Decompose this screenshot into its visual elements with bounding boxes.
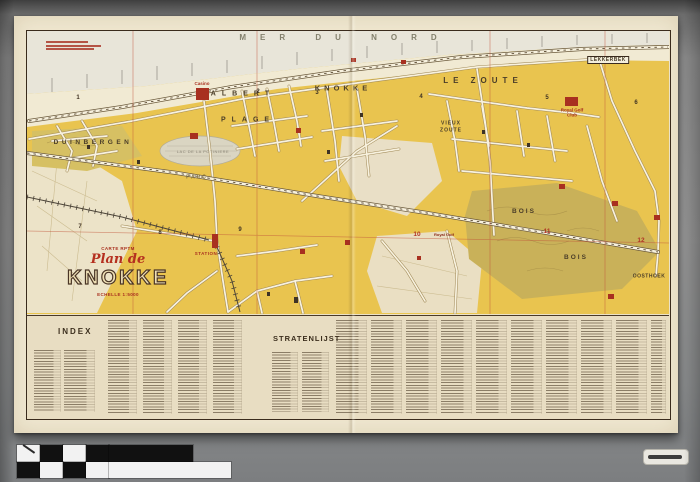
title-city: KNOKKE bbox=[64, 267, 172, 290]
lake-label: LAC DE LA POTINIERE bbox=[177, 150, 229, 154]
title-scale: ECHELLE 1:5000 bbox=[64, 292, 172, 297]
index-column bbox=[178, 320, 207, 414]
region-le-zoute: LE ZOUTE bbox=[443, 77, 523, 85]
index-column bbox=[143, 320, 172, 414]
title-series: CARTE RPTM bbox=[64, 246, 172, 251]
inventory-sticker bbox=[643, 449, 689, 465]
region-vieux-zoute-line2: ZOUTE bbox=[440, 129, 462, 134]
index-column bbox=[371, 320, 402, 414]
golf-clubhouse-marker bbox=[565, 97, 578, 106]
section-5: 5 bbox=[545, 95, 548, 101]
stratenlijst-heading: STRATENLIJST bbox=[273, 335, 340, 343]
station-label: STATION bbox=[195, 252, 218, 257]
region-oosthoek: OOSTHOEK bbox=[633, 275, 666, 280]
index-column bbox=[336, 320, 367, 414]
casino-marker bbox=[196, 88, 209, 100]
index-column bbox=[651, 320, 666, 414]
index-column bbox=[272, 352, 298, 412]
section-11: 11 bbox=[544, 229, 551, 236]
map-legend-lines bbox=[46, 41, 101, 52]
golf-club-label: Royal Golf Club bbox=[558, 109, 586, 118]
index-column bbox=[34, 350, 61, 412]
region-lekkerbek: LEKKERBEK bbox=[587, 56, 629, 64]
section-2: 2 bbox=[256, 89, 259, 95]
section-8: 8 bbox=[158, 230, 161, 236]
region-vieux-zoute-line1: VIEUX bbox=[441, 122, 461, 127]
section-9: 9 bbox=[238, 227, 241, 233]
section-1: 1 bbox=[76, 95, 79, 101]
street-index-panel: INDEX STRATENLIJST bbox=[27, 315, 669, 419]
index-column bbox=[476, 320, 507, 414]
sea-label: MER DU NORD bbox=[239, 34, 450, 42]
region-knokke: KNOKKE bbox=[315, 84, 372, 92]
section-6: 6 bbox=[634, 100, 637, 106]
golf-area-label: Royal Golf bbox=[434, 233, 454, 237]
index-column bbox=[441, 320, 472, 414]
index-column bbox=[546, 320, 577, 414]
section-4: 4 bbox=[419, 94, 422, 100]
region-bois-1: BOIS bbox=[512, 209, 536, 216]
index-column bbox=[302, 352, 329, 412]
index-column bbox=[581, 320, 612, 414]
region-parc: PARC bbox=[186, 176, 208, 181]
section-7: 7 bbox=[78, 224, 81, 230]
title-plan-de: Plan de bbox=[64, 252, 172, 267]
section-10: 10 bbox=[413, 232, 420, 239]
region-duinbergen: DUINBERGEN bbox=[54, 140, 133, 147]
region-bois-2: BOIS bbox=[564, 255, 588, 262]
casino-label: Casino bbox=[194, 82, 209, 87]
station-marker bbox=[212, 234, 218, 248]
region-plage: PLAGE bbox=[221, 117, 275, 124]
index-column bbox=[406, 320, 437, 414]
calibration-scale-bar bbox=[17, 445, 232, 478]
section-12: 12 bbox=[637, 238, 644, 245]
photograph-of-map: MER DU NORD DUINBERGEN ALBERT PLAGE KNOK… bbox=[0, 0, 700, 482]
section-3: 3 bbox=[315, 90, 318, 96]
index-column bbox=[108, 320, 137, 414]
index-column bbox=[64, 350, 95, 412]
region-albert: ALBERT bbox=[211, 91, 275, 98]
index-column bbox=[511, 320, 542, 414]
index-column bbox=[213, 320, 242, 414]
map-title-block: CARTE RPTM Plan de KNOKKE ECHELLE 1:5000 bbox=[64, 246, 172, 297]
index-column bbox=[616, 320, 647, 414]
index-heading: INDEX bbox=[58, 328, 92, 336]
